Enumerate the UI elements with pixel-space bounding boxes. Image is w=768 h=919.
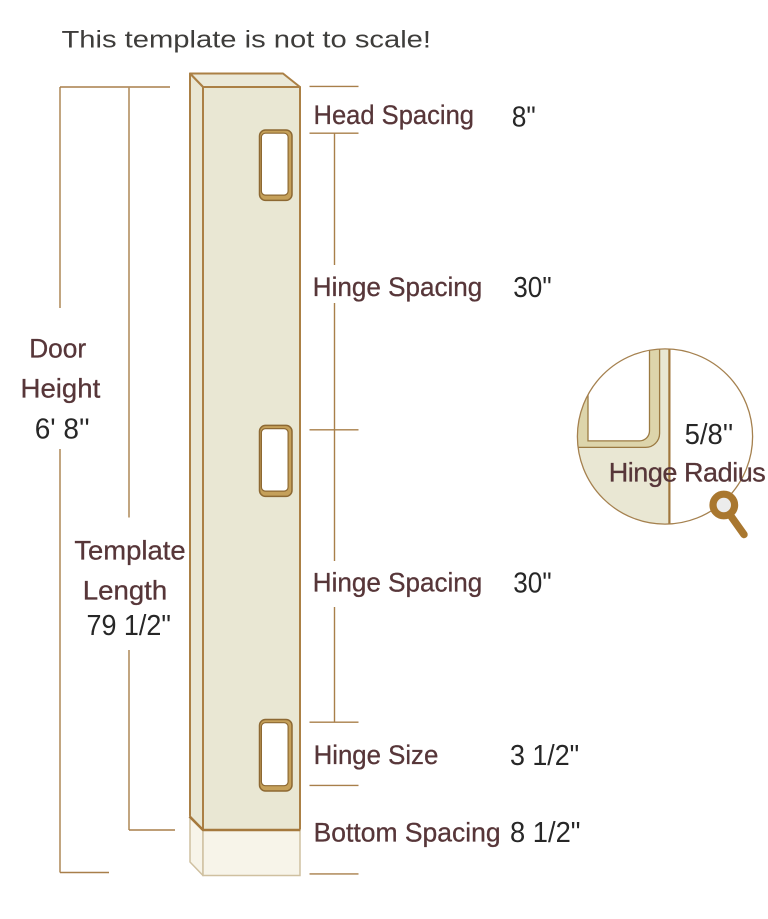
svg-text:Hinge Spacing: Hinge Spacing bbox=[313, 568, 483, 598]
svg-text:8": 8" bbox=[512, 102, 536, 134]
svg-text:3 1/2": 3 1/2" bbox=[510, 740, 579, 772]
svg-text:79 1/2": 79 1/2" bbox=[87, 610, 171, 642]
svg-text:Template: Template bbox=[74, 535, 185, 565]
svg-text:30": 30" bbox=[513, 568, 551, 600]
svg-text:Door: Door bbox=[29, 334, 86, 364]
svg-text:Bottom Spacing: Bottom Spacing bbox=[314, 817, 501, 847]
svg-text:Length: Length bbox=[83, 576, 167, 606]
svg-text:8 1/2": 8 1/2" bbox=[510, 817, 581, 849]
svg-text:Head Spacing: Head Spacing bbox=[314, 100, 475, 130]
svg-text:5/8'': 5/8'' bbox=[685, 419, 734, 451]
svg-text:Hinge Size: Hinge Size bbox=[314, 740, 439, 770]
svg-text:This template is not to scale!: This template is not to scale! bbox=[62, 26, 432, 53]
svg-text:30": 30" bbox=[513, 272, 551, 304]
svg-text:Height: Height bbox=[21, 373, 101, 403]
svg-text:Hinge Spacing: Hinge Spacing bbox=[313, 272, 483, 302]
svg-text:Hinge Radius: Hinge Radius bbox=[609, 458, 766, 488]
svg-text:6' 8'': 6' 8'' bbox=[35, 414, 90, 446]
